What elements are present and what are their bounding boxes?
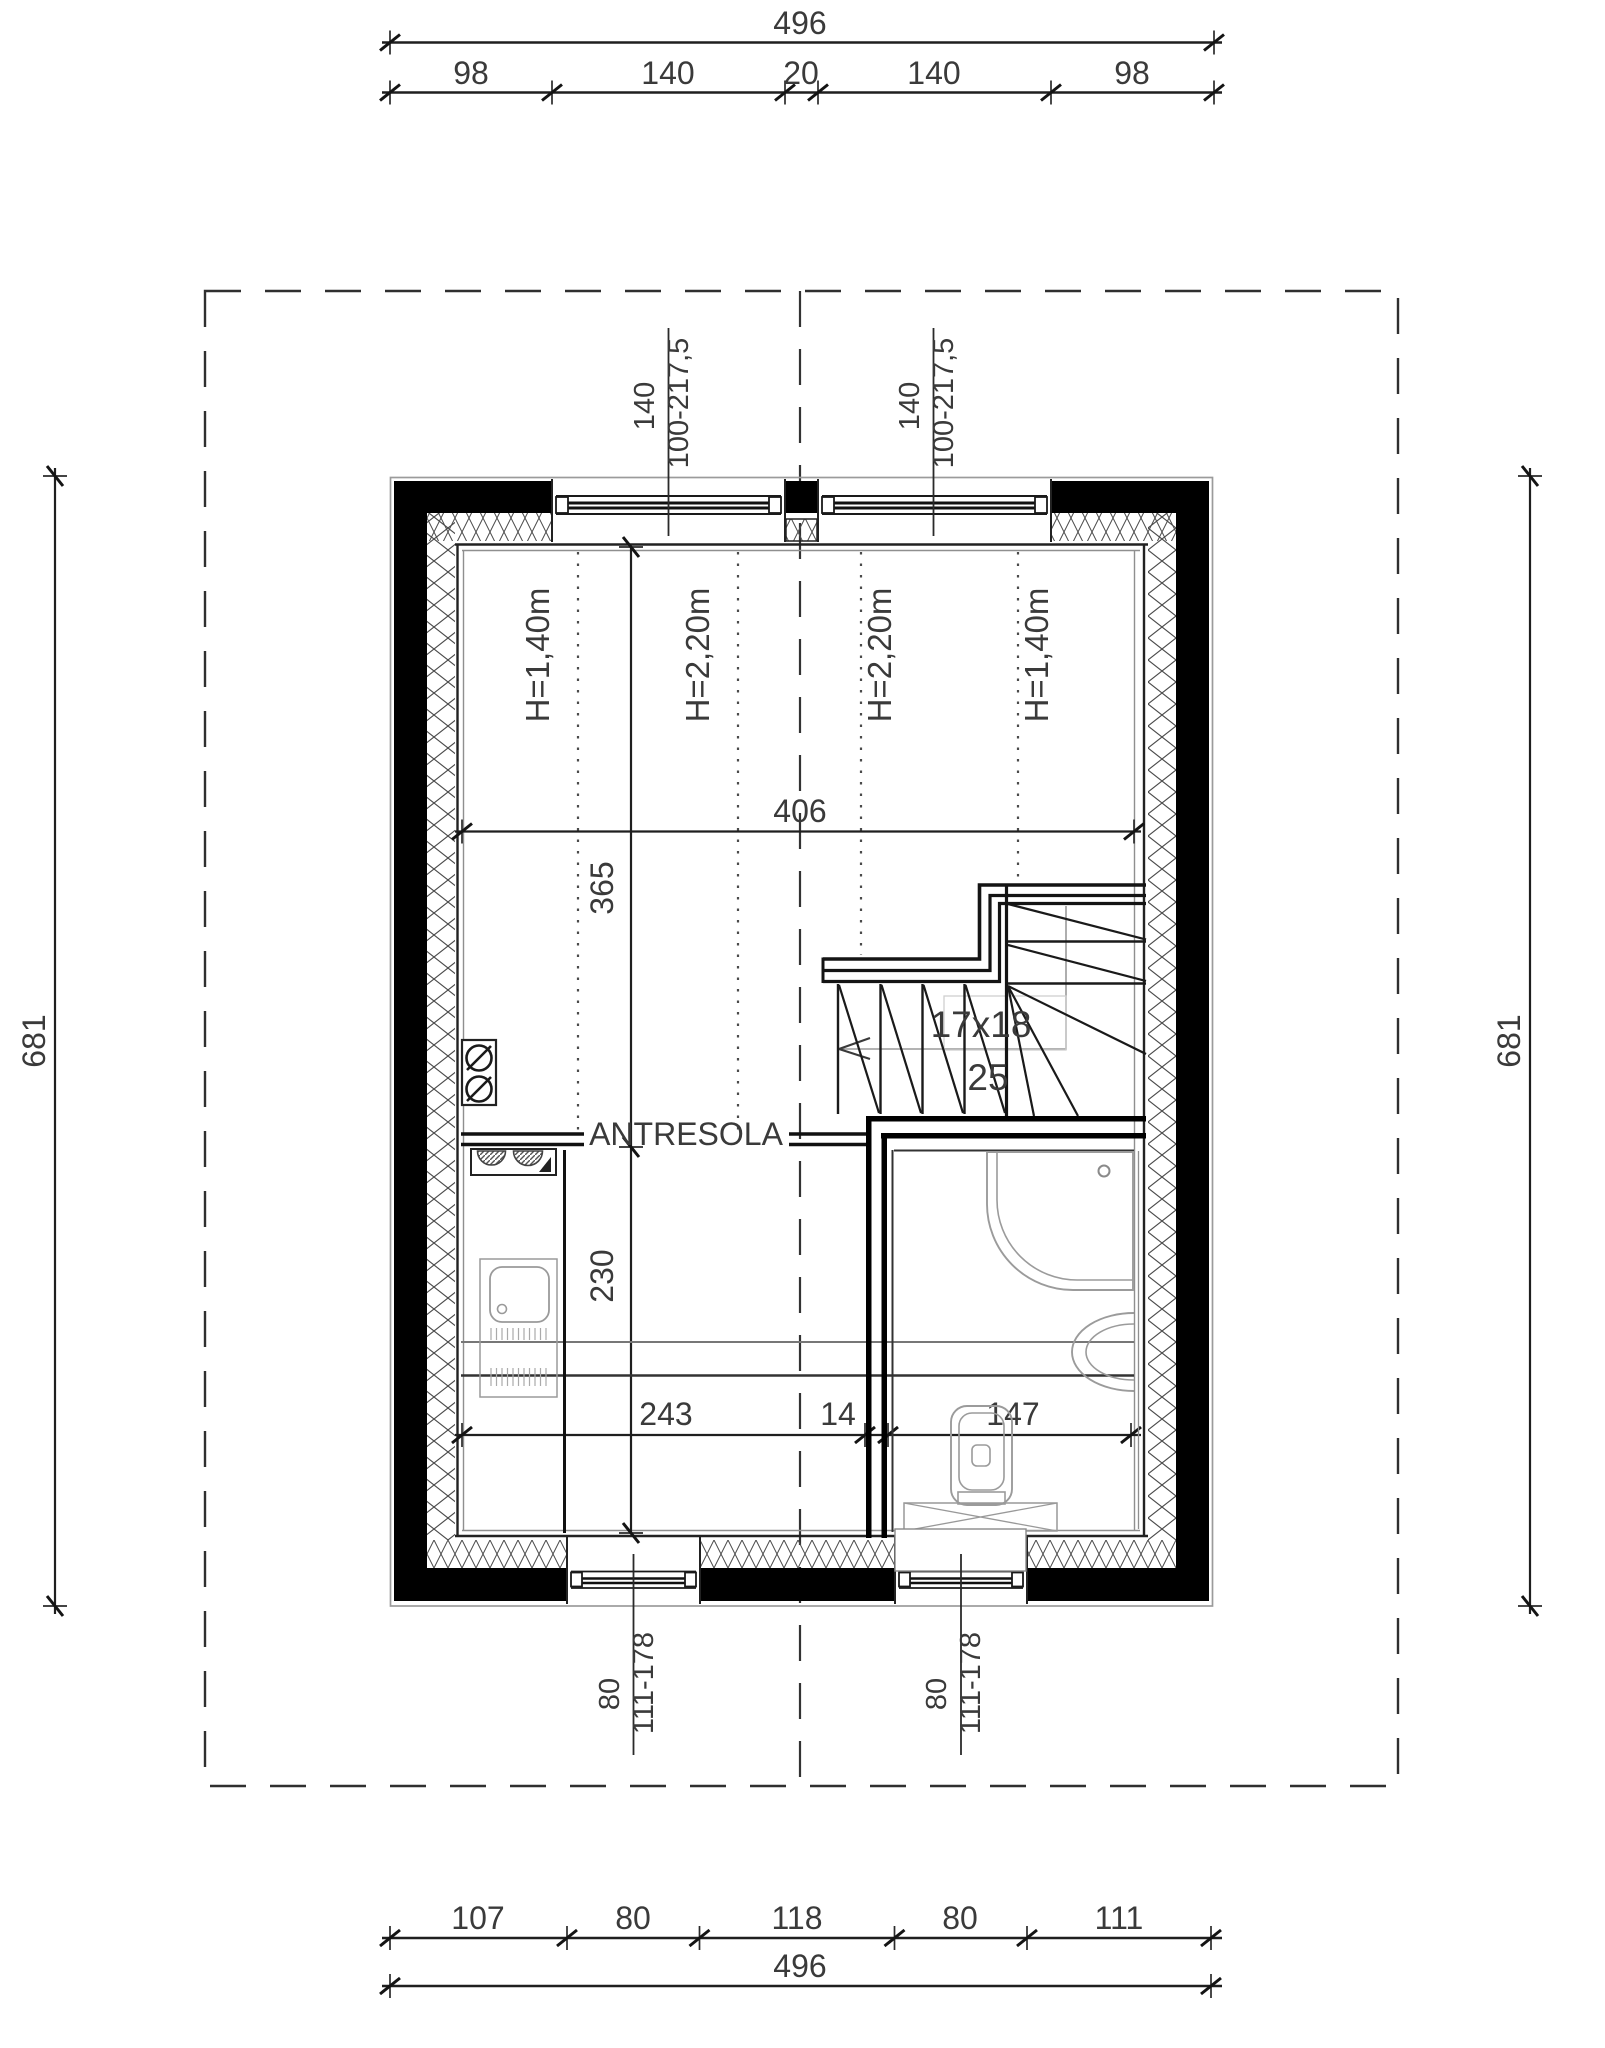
- svg-text:H=1,40m: H=1,40m: [519, 588, 556, 723]
- svg-text:111-178: 111-178: [628, 1632, 660, 1734]
- svg-text:98: 98: [1114, 55, 1150, 91]
- svg-text:140: 140: [629, 382, 661, 430]
- svg-text:14: 14: [820, 1396, 856, 1432]
- svg-text:98: 98: [453, 55, 489, 91]
- svg-text:681: 681: [16, 1014, 52, 1067]
- svg-text:107: 107: [451, 1900, 504, 1936]
- svg-text:H=1,40m: H=1,40m: [1018, 588, 1055, 723]
- svg-text:140: 140: [641, 55, 694, 91]
- svg-text:496: 496: [773, 5, 826, 41]
- svg-text:100-217,5: 100-217,5: [928, 338, 960, 469]
- svg-text:406: 406: [773, 793, 826, 829]
- svg-text:140: 140: [907, 55, 960, 91]
- svg-text:100-217,5: 100-217,5: [663, 338, 695, 469]
- svg-text:80: 80: [615, 1900, 651, 1936]
- svg-text:80: 80: [942, 1900, 978, 1936]
- svg-text:ANTRESOLA: ANTRESOLA: [589, 1116, 783, 1152]
- svg-text:H=2,20m: H=2,20m: [861, 588, 898, 723]
- svg-text:111-178: 111-178: [955, 1632, 987, 1734]
- svg-text:140: 140: [894, 382, 926, 430]
- svg-text:230: 230: [584, 1249, 620, 1302]
- svg-text:243: 243: [639, 1396, 692, 1432]
- svg-text:H=2,20m: H=2,20m: [679, 588, 716, 723]
- svg-text:80: 80: [921, 1678, 953, 1710]
- svg-text:118: 118: [771, 1900, 822, 1936]
- svg-text:681: 681: [1491, 1014, 1527, 1067]
- svg-text:25: 25: [967, 1057, 1008, 1098]
- svg-text:111: 111: [1095, 1900, 1144, 1936]
- svg-text:20: 20: [783, 55, 819, 91]
- svg-text:496: 496: [773, 1948, 826, 1984]
- svg-text:80: 80: [594, 1678, 626, 1710]
- svg-text:17x18: 17x18: [931, 1004, 1032, 1045]
- svg-text:365: 365: [584, 861, 620, 914]
